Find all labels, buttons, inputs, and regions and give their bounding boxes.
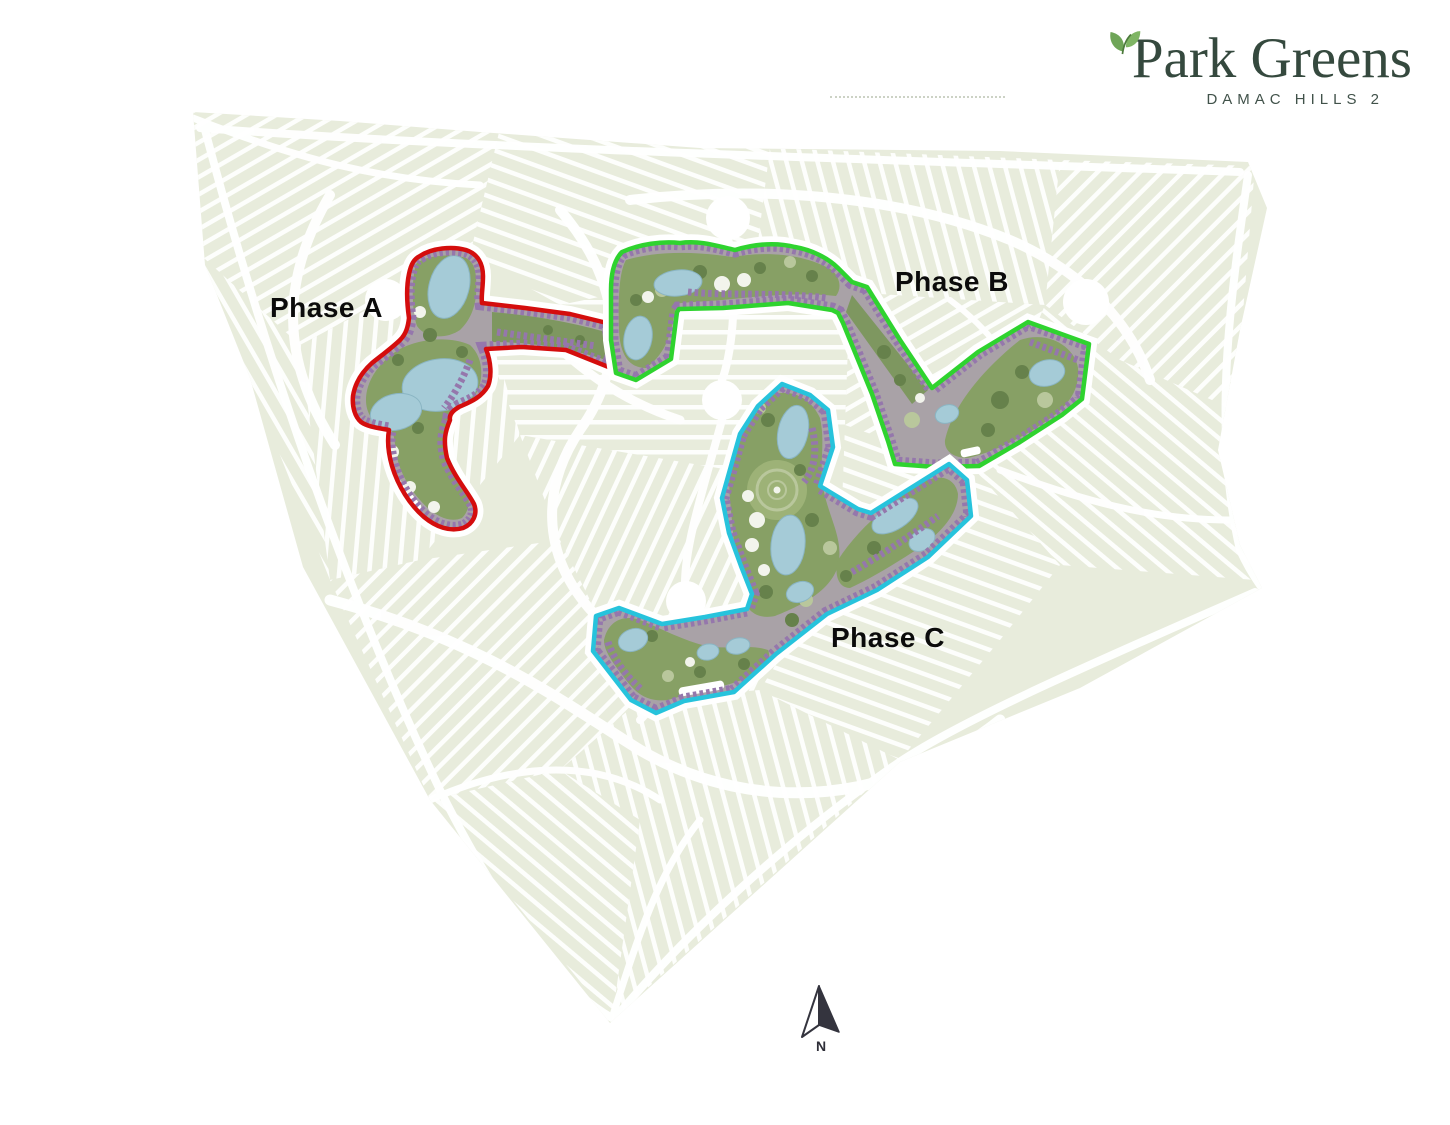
logo-dotted-line [830,96,1005,98]
park-greens-logo: Park Greens DAMAC HILLS 2 [1072,30,1412,108]
logo-title: Park Greens [1102,30,1412,87]
north-label: N [806,1038,836,1054]
logo-subtitle: DAMAC HILLS 2 [1072,91,1412,108]
phase-a-label: Phase A [270,292,383,324]
phase-c-label: Phase C [831,622,945,654]
logo-title-text: Park Greens [1132,27,1412,90]
masterplan-map [0,0,1450,1125]
community-base [180,100,1267,1023]
masterplan-page: Phase A Phase B Phase C Park Greens DAMA… [0,0,1450,1125]
phase-b-label: Phase B [895,266,1009,298]
north-arrow-icon [802,986,839,1037]
